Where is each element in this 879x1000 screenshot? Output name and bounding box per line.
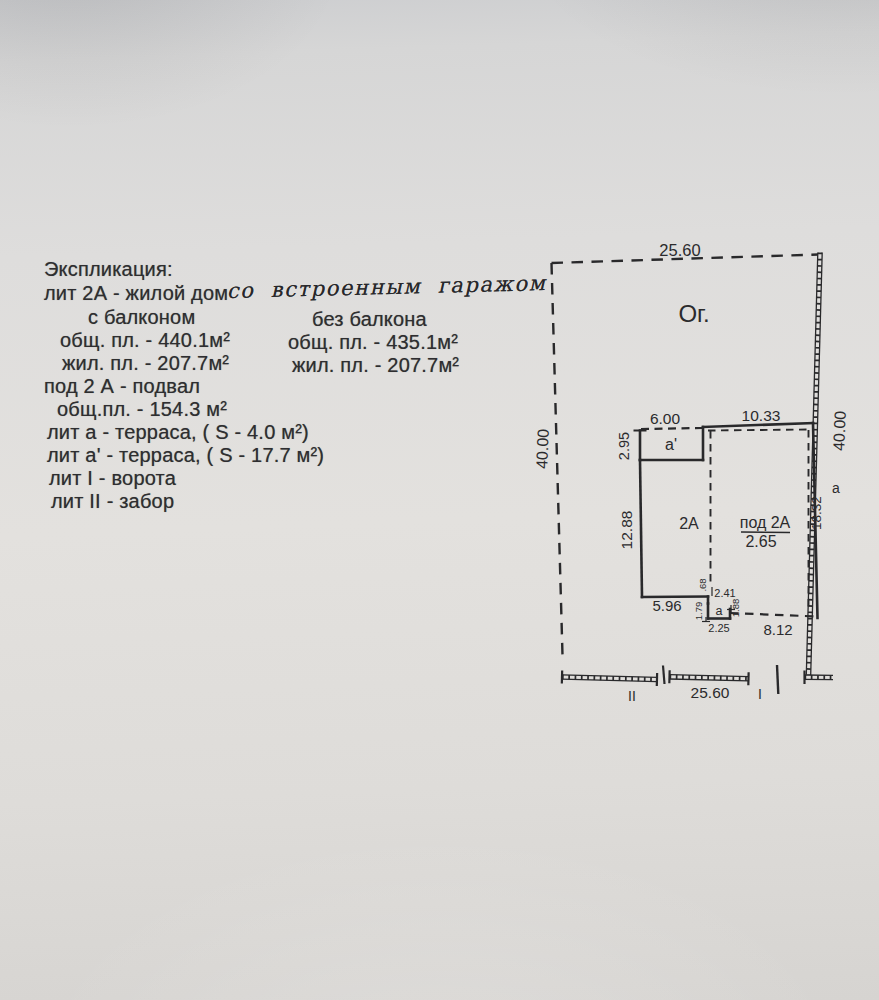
dim-porch-top-width: 2.41 [714,587,735,599]
dim-terrace-a-left: 1.79 [693,602,704,621]
basement-label: под 2А [740,514,791,531]
dim-step-depth: .68 [697,578,708,591]
fence-mark-label: II [628,688,636,704]
dim-top-width: 25.60 [659,241,700,259]
terrace-a1-label: а' [665,436,677,453]
plot-boundary-left [552,263,563,655]
dim-terrace-a-right: 1.88 [730,599,741,618]
dim-house-left-wall: 12.88 [618,511,635,550]
dim-house-top-width: 10.33 [742,407,781,424]
dim-terrace-a-width: 2.25 [708,622,729,634]
garden-label: Ог. [678,300,709,327]
dim-right-depth: 40.00 [830,410,848,451]
site-plan: 25.60 Ог. 40.00 40.00 6.00 10.33 2.95 а'… [0,0,879,1000]
dim-bottom-width: 25.60 [691,684,730,701]
fence-25-rungs [670,677,749,679]
house-west-wall [640,460,642,597]
terrace-a-label: а [716,604,723,618]
dim-terrace-a1-width: 6.00 [650,410,681,427]
fence-25-edge1 [670,675,749,677]
dim-house-bottom-left: 5.96 [652,597,681,614]
side-label-a: а [832,480,840,496]
dim-house-right-wall: 18.32 [809,496,824,530]
gate-post [777,665,778,694]
house-south-east-edge [730,613,817,617]
basement-top-edge [708,430,809,431]
fence-gap-tick [663,666,665,685]
dim-terrace-a1-depth: 2.95 [616,432,632,460]
dim-house-bottom-right: 8.12 [763,621,792,638]
gate-mark-label: I [758,686,762,702]
fence-bottom-ii [562,671,657,686]
basement-height: 2.65 [745,533,776,550]
house-label: 2А [679,515,699,532]
terrace-a1-open-side [641,428,702,429]
dim-left-depth: 40.00 [533,428,551,469]
fence-bottom-25 [669,670,748,685]
fence-corner [805,671,834,685]
